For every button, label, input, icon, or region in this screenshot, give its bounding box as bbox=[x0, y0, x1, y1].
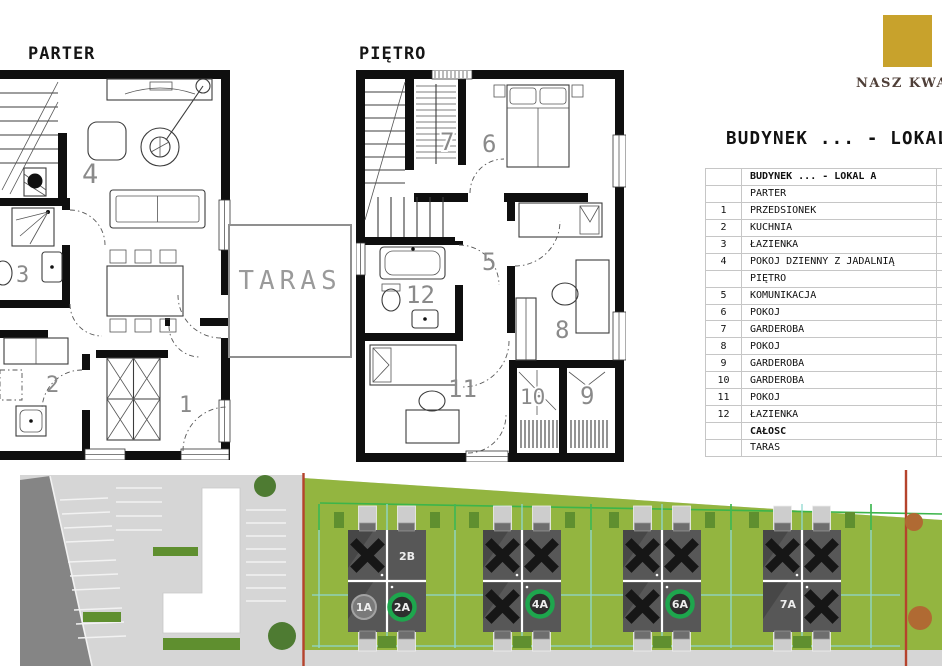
hedge bbox=[163, 638, 240, 650]
terrace-label: TARAS bbox=[238, 266, 341, 296]
table-row: 2KUCHNIA bbox=[706, 220, 942, 237]
room-number-2: 2 bbox=[46, 373, 59, 398]
bathroom-fixtures bbox=[0, 208, 62, 285]
room-number-4: 4 bbox=[82, 159, 98, 190]
room-number-9: 9 bbox=[580, 382, 594, 410]
autumn-tree bbox=[908, 606, 932, 630]
parter-room-numbers: 4 3 2 1 bbox=[16, 159, 192, 418]
room-number-8: 8 bbox=[555, 316, 569, 344]
table-row: 5KOMUNIKACJA bbox=[706, 288, 942, 305]
tree bbox=[268, 622, 296, 650]
building-4 bbox=[763, 523, 841, 639]
brand-logo-square bbox=[883, 15, 932, 67]
unit-marker-7A: 7A bbox=[780, 598, 797, 611]
svg-text:2A: 2A bbox=[394, 601, 411, 614]
table-row: 12ŁAZIENKA bbox=[706, 406, 942, 423]
tree bbox=[254, 475, 276, 497]
building-1 bbox=[348, 523, 426, 639]
room-number-3: 3 bbox=[16, 263, 29, 288]
unit-marker-6A[interactable]: 6A bbox=[668, 592, 693, 617]
table-row: 6POKÓJ bbox=[706, 305, 942, 322]
dining-set bbox=[107, 250, 183, 332]
autumn-tree bbox=[905, 513, 923, 531]
site-plan: 2B 1A 2A 4A 6A 7A bbox=[20, 470, 942, 666]
svg-text:6A: 6A bbox=[672, 598, 689, 611]
table-total-row: CAŁOŚĆ bbox=[706, 423, 942, 440]
page-title: BUDYNEK ... - LOKAL A bbox=[726, 129, 942, 155]
svg-text:4A: 4A bbox=[532, 598, 549, 611]
building-2 bbox=[483, 523, 561, 639]
room-number-10: 10 bbox=[520, 385, 545, 409]
room-legend-table: BUDYNEK ... - LOKAL A PARTER 1PRZEDSIONE… bbox=[705, 168, 942, 457]
pietro-plan-title: PIĘTRO bbox=[359, 44, 426, 64]
double-bed bbox=[494, 85, 583, 167]
table-row: TARAS bbox=[706, 440, 942, 457]
unit-marker-4A[interactable]: 4A bbox=[528, 592, 553, 617]
unit-marker-1A[interactable]: 1A bbox=[352, 595, 376, 619]
table-section-row: PIĘTRO bbox=[706, 271, 942, 288]
room-number-6: 6 bbox=[482, 130, 496, 158]
parter-walls bbox=[0, 70, 230, 460]
svg-text:1A: 1A bbox=[356, 601, 373, 614]
hedge bbox=[83, 612, 121, 622]
room11-furniture bbox=[370, 345, 459, 443]
building-3 bbox=[623, 523, 701, 639]
table-row: 4POKÓJ DZIENNY Z JADALNIĄ bbox=[706, 254, 942, 271]
brand-name: NASZ KWADRAT bbox=[856, 76, 942, 94]
wardrobe bbox=[107, 358, 160, 440]
coffee-table bbox=[88, 122, 126, 160]
room-number-7: 7 bbox=[440, 128, 454, 156]
unit-marker-2B: 2B bbox=[399, 550, 415, 563]
bottom-road bbox=[20, 650, 942, 666]
table-row: 3ŁAZIENKA bbox=[706, 237, 942, 254]
unit-marker-2A[interactable]: 2A bbox=[390, 595, 415, 620]
terrace-outline: TARAS bbox=[228, 224, 352, 358]
table-row: 9GARDEROBA bbox=[706, 355, 942, 372]
room-number-12: 12 bbox=[406, 281, 435, 309]
room-number-1: 1 bbox=[179, 393, 192, 418]
stove bbox=[24, 168, 46, 196]
sofa bbox=[110, 190, 205, 228]
table-row: 11POKÓJ bbox=[706, 389, 942, 406]
table-row: 8POKÓJ bbox=[706, 338, 942, 355]
kitchen-counter-top bbox=[107, 79, 212, 100]
svg-text:2B: 2B bbox=[399, 550, 415, 563]
svg-text:7A: 7A bbox=[780, 598, 797, 611]
table-row: 1PRZEDSIONEK bbox=[706, 203, 942, 220]
table-row: 7GARDEROBA bbox=[706, 321, 942, 338]
hedge bbox=[153, 547, 198, 556]
staircase bbox=[365, 82, 443, 237]
round-table bbox=[141, 79, 210, 166]
pietro-floor-plan: 7 6 5 12 8 11 10 9 bbox=[356, 70, 626, 462]
parter-plan-title: PARTER bbox=[28, 44, 95, 64]
table-header-row: BUDYNEK ... - LOKAL A bbox=[706, 169, 942, 186]
table-section-row: PARTER bbox=[706, 186, 942, 203]
room-number-11: 11 bbox=[448, 375, 477, 403]
table-row: 10GARDEROBA bbox=[706, 372, 942, 389]
room-number-5: 5 bbox=[482, 248, 496, 276]
parter-floor-plan: 4 3 2 1 bbox=[0, 70, 232, 460]
brochure-page: { "brand": {"name": "NASZ KWADRAT"}, "ti… bbox=[0, 0, 942, 666]
